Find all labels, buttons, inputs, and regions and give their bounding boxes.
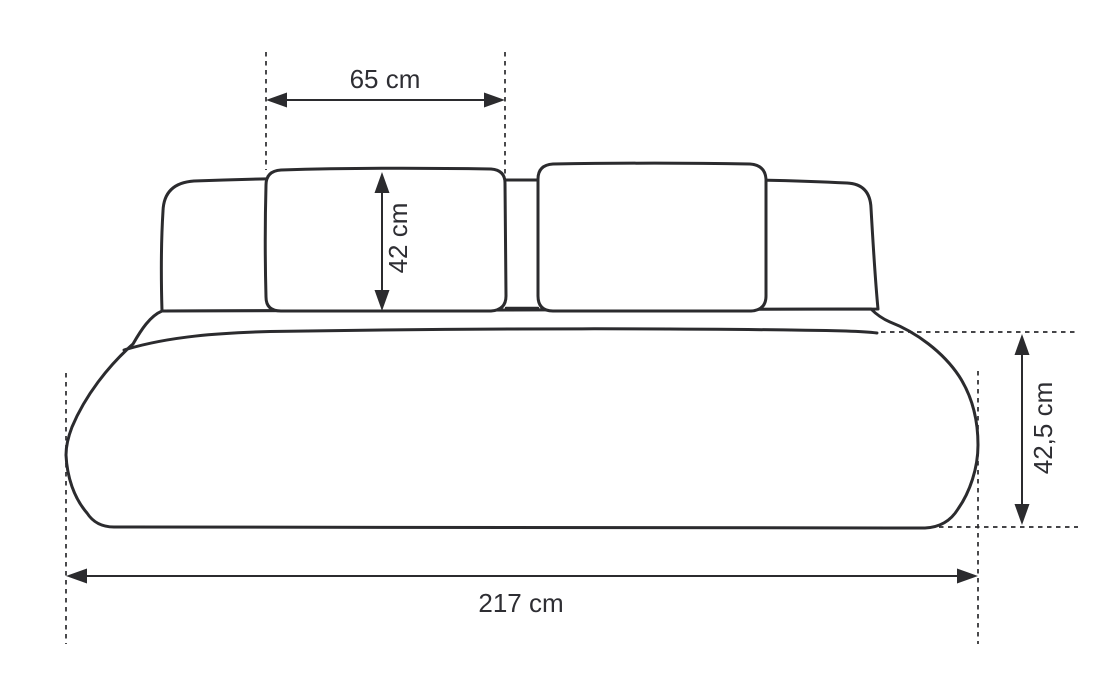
arrowhead-right-icon (957, 569, 978, 584)
arrowhead-up-icon (1015, 334, 1030, 355)
arrowhead-down-icon (1015, 504, 1030, 525)
dimension-label-cushion-height: 42 cm (383, 203, 413, 274)
sofa-body (66, 309, 978, 528)
dimension-label-cushion-width: 65 cm (350, 64, 421, 94)
arrowhead-right-icon (484, 93, 505, 108)
dimension-label-total-width: 217 cm (478, 588, 563, 618)
sofa-right-cushion (538, 163, 766, 311)
dimension-total-width: 217 cm (66, 569, 978, 619)
sofa-dimension-diagram: 65 cm 42 cm 42,5 cm 217 cm (0, 0, 1109, 674)
diagram-canvas: 65 cm 42 cm 42,5 cm 217 cm (0, 0, 1109, 674)
dimension-base-height: 42,5 cm (1015, 334, 1059, 525)
dimension-cushion-width: 65 cm (266, 64, 505, 108)
arrowhead-left-icon (266, 93, 287, 108)
sofa-drawing (66, 163, 978, 528)
arrowhead-left-icon (66, 569, 87, 584)
dimension-label-base-height: 42,5 cm (1028, 382, 1058, 475)
